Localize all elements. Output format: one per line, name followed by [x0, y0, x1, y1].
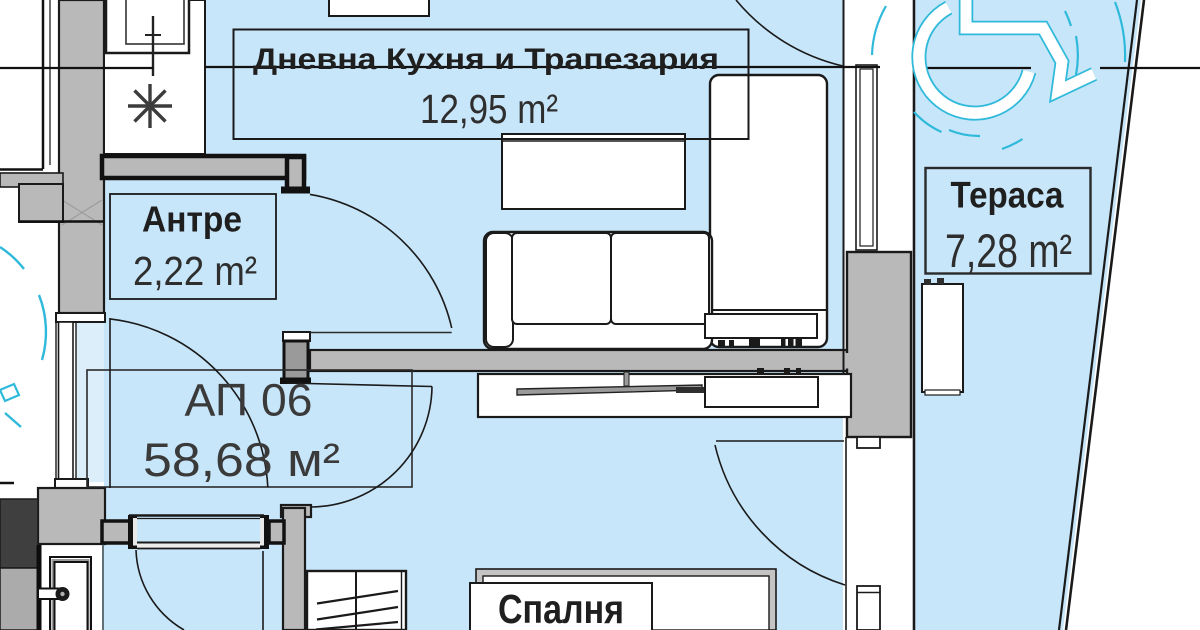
svg-text:Дневна Кухня и Трапезария: Дневна Кухня и Трапезария: [253, 43, 719, 76]
svg-text:Спалня: Спалня: [498, 586, 624, 630]
svg-text:12,95 m²: 12,95 m²: [420, 86, 558, 132]
svg-text:7,28 m²: 7,28 m²: [945, 224, 1072, 277]
svg-text:АП 06: АП 06: [185, 375, 313, 426]
svg-text:Антре: Антре: [142, 199, 242, 240]
svg-text:Тераса: Тераса: [951, 175, 1064, 216]
svg-text:58,68 м²: 58,68 м²: [143, 433, 340, 486]
svg-text:2,22 m²: 2,22 m²: [133, 248, 257, 294]
